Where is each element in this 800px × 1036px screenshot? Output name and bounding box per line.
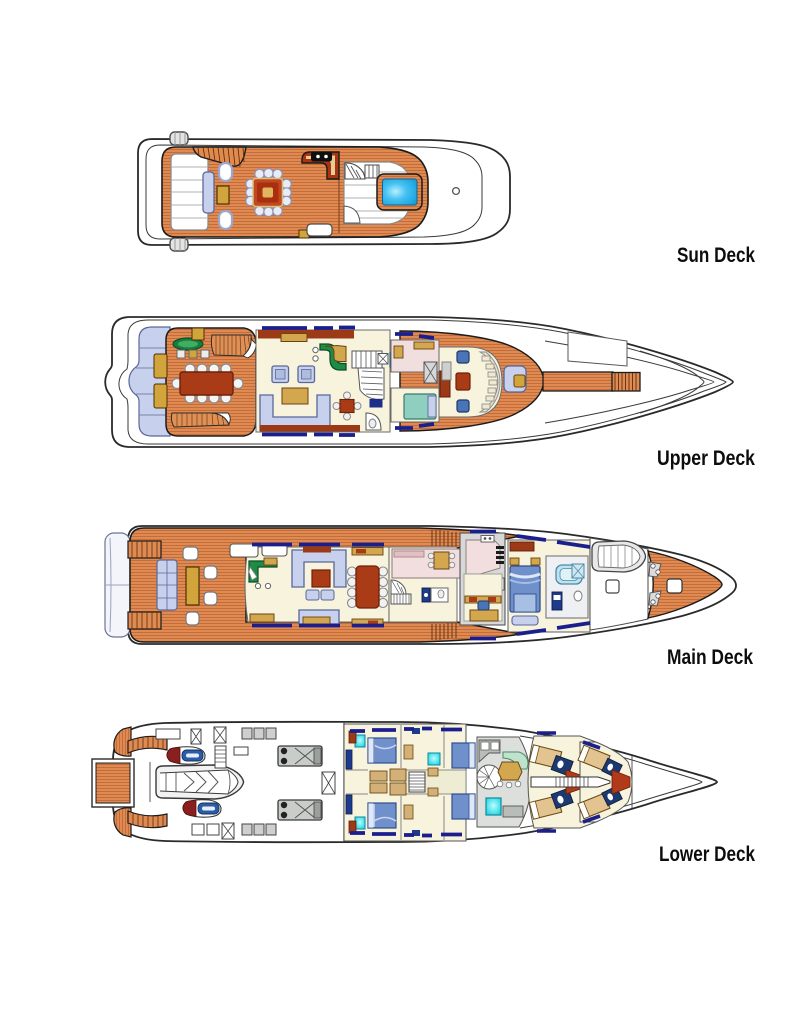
- svg-text:Upper Deck: Upper Deck: [657, 447, 755, 470]
- svg-text:Main Deck: Main Deck: [667, 646, 753, 669]
- svg-text:Lower Deck: Lower Deck: [659, 843, 755, 866]
- svg-text:Sun Deck: Sun Deck: [677, 244, 755, 267]
